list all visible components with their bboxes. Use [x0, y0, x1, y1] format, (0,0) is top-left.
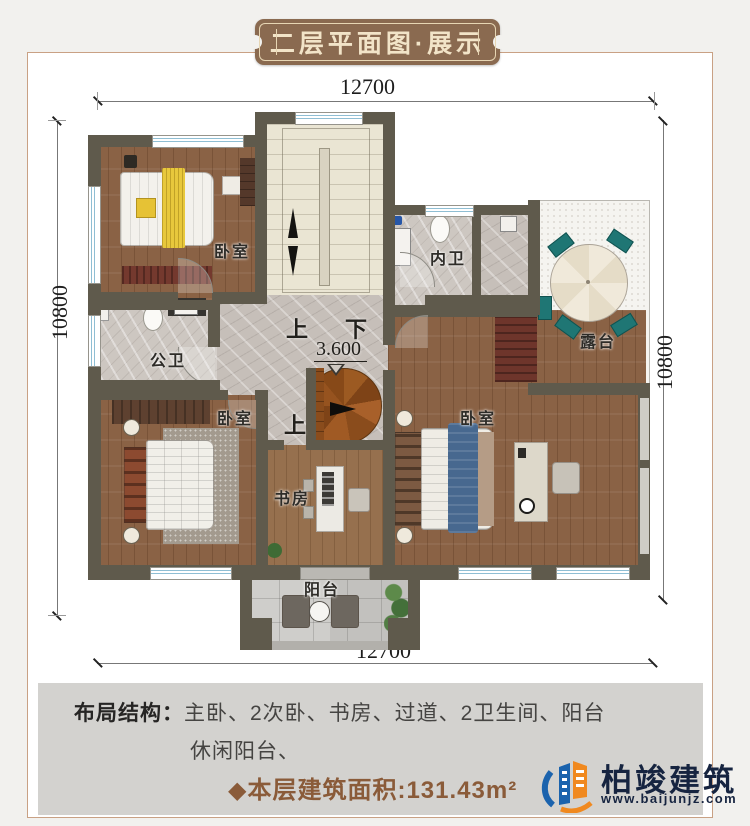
master-lamp-a-icon — [396, 410, 413, 427]
window-master-bottom-a — [458, 567, 532, 580]
wall-master-left-a — [383, 305, 395, 345]
badge-divider-left — [276, 29, 277, 55]
wall-master-top — [390, 305, 538, 317]
layout-structure-label: 布局结构： — [74, 702, 184, 725]
title-badge-inner: 二层平面图·展示 — [259, 23, 496, 61]
wall-publicbath-right — [208, 300, 220, 347]
wall-master-left-b — [383, 370, 395, 570]
master-bed-tan-throw — [478, 432, 494, 526]
study-chair — [348, 488, 370, 512]
layout-structure-line2: 休闲阳台、 — [190, 735, 300, 765]
label-master-bedroom: 卧室 — [460, 405, 496, 429]
window-bedroom1-left — [88, 186, 101, 284]
dimension-left-value: 10800 — [47, 285, 73, 340]
master-bed-blue-runner — [448, 423, 478, 533]
dimension-top-value: 12700 — [340, 74, 395, 100]
balcony-table — [309, 601, 330, 622]
lamp-2a-icon — [123, 419, 140, 436]
stair-arrow-down-icon — [288, 246, 298, 276]
label-public-bathroom: 公卫 — [150, 347, 186, 371]
page-title: 二层平面图·展示 — [270, 24, 485, 60]
stairwell-rail — [319, 148, 330, 286]
wall-study-top-b — [306, 440, 395, 450]
study-plant-icon — [267, 543, 282, 558]
wall-publicbath-bottom — [88, 380, 220, 390]
bed-1-yellow-pillow — [136, 198, 156, 218]
master-bed-pillows — [395, 432, 423, 526]
window-stairwell — [295, 112, 363, 125]
label-balcony: 阳台 — [304, 576, 340, 600]
title-badge: 二层平面图·展示 — [255, 19, 500, 65]
wall-terrace-left — [528, 200, 540, 315]
umbrella-center — [586, 280, 590, 284]
label-elevation: 3.600 — [314, 338, 367, 362]
balcony-rail — [252, 641, 408, 650]
window-innerbath — [425, 205, 474, 217]
label-inner-bathroom: 内卫 — [430, 245, 466, 269]
balcony-pier-left — [240, 618, 272, 650]
master-wardrobe — [495, 316, 537, 382]
brand-logo-icon — [541, 753, 597, 813]
window-bedroom1-top — [152, 135, 244, 148]
console-speaker-icon — [519, 498, 535, 514]
dimension-right-value: 10800 — [652, 335, 678, 390]
patio-chair-3 — [538, 296, 552, 320]
wall-publicbath-top — [88, 300, 218, 310]
side-table-1 — [222, 176, 241, 195]
wall-study-top-a — [258, 440, 284, 450]
floor-area-text: ◆本层建筑面积:131.43m² — [228, 770, 517, 805]
label-study: 书房 — [274, 485, 310, 509]
master-right-glass-1 — [640, 398, 649, 460]
tv-icon — [518, 448, 526, 458]
window-bedroom2-bottom — [150, 567, 232, 580]
label-bedroom-top-left: 卧室 — [214, 238, 250, 262]
wall-stairwell-left — [255, 112, 267, 304]
label-terrace: 露台 — [580, 328, 616, 352]
window-publicbath-left — [88, 315, 101, 367]
master-lamp-b-icon — [396, 527, 413, 544]
layout-structure-line1: 布局结构：主卧、2次卧、书房、过道、2卫生间、阳台 — [74, 697, 605, 727]
balcony-pier-right — [388, 618, 420, 650]
master-chair — [552, 462, 580, 494]
spiral-arrow-icon — [330, 402, 356, 416]
wall-bedroom2-top-a — [100, 390, 228, 400]
layout-structure-items-1: 主卧、2次卧、书房、过道、2卫生间、阳台 — [184, 702, 605, 725]
study-desk-items — [322, 472, 334, 506]
window-master-bottom-b — [556, 567, 630, 580]
wall-innerbath-divider — [472, 205, 481, 305]
bed-2 — [146, 440, 214, 530]
floor-plan: 卧室 内卫 露台 公卫 卧室 卧室 书房 阳台 上 下 上 3.600 — [0, 0, 750, 12]
elevation-marker-icon — [327, 364, 345, 376]
brand-url: www.baijunjz.com — [601, 791, 737, 806]
badge-divider-right — [478, 29, 479, 55]
label-spiral-up: 上 — [284, 408, 306, 440]
label-bedroom-bottom-left: 卧室 — [217, 405, 253, 429]
label-stairs-up: 上 — [286, 312, 308, 344]
wall-study-left — [256, 395, 268, 580]
bed-1-yellow-throw — [162, 168, 185, 248]
wall-terrace-bottom — [528, 383, 650, 395]
wall-bedroom1-bottom-b — [212, 292, 267, 304]
toilet-inner — [430, 215, 450, 243]
screenshot-root: { "title": "二层平面图·展示", "dimensions": { "… — [0, 0, 750, 826]
master-right-glass-2 — [640, 468, 649, 554]
nightstand-speaker — [124, 155, 137, 168]
lamp-2b-icon — [123, 527, 140, 544]
shower-sink — [500, 216, 517, 232]
bed-2-pillows — [124, 447, 148, 523]
stair-arrow-up-icon — [288, 208, 298, 238]
wall-spiral-nook — [306, 368, 316, 444]
